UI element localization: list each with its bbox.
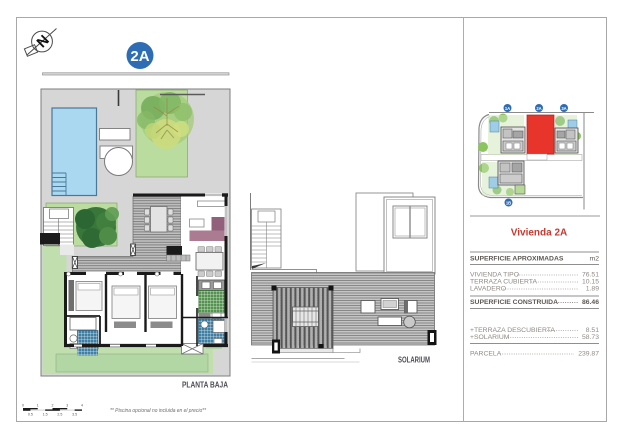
- svg-text:86.46: 86.46: [582, 299, 599, 306]
- svg-text:VIVIENDA TIPO: VIVIENDA TIPO: [470, 272, 519, 279]
- svg-text:** Piscina opcional no incluid: ** Piscina opcional no incluida en el pr…: [110, 408, 207, 414]
- svg-text:2A: 2A: [536, 106, 541, 111]
- svg-text:2: 2: [52, 404, 54, 408]
- svg-text:76.51: 76.51: [582, 272, 599, 279]
- svg-text:2A: 2A: [130, 48, 149, 65]
- svg-text:1B: 1B: [506, 201, 511, 206]
- svg-text:10.15: 10.15: [582, 279, 599, 286]
- svg-text:0.5: 0.5: [28, 413, 33, 417]
- svg-text:SUPERFICIE APROXIMADAS: SUPERFICIE APROXIMADAS: [470, 256, 564, 263]
- svg-text:PARCELA: PARCELA: [470, 351, 502, 358]
- svg-text:1.5: 1.5: [43, 413, 48, 417]
- svg-text:PLANTA BAJA: PLANTA BAJA: [182, 381, 228, 390]
- svg-text:1.89: 1.89: [586, 286, 599, 293]
- svg-text:m2: m2: [590, 256, 600, 263]
- svg-text:58.73: 58.73: [582, 334, 599, 341]
- svg-text:239.87: 239.87: [578, 351, 599, 358]
- svg-text:1: 1: [37, 404, 39, 408]
- svg-text:SUPERFICIE CONSTRUIDA: SUPERFICIE CONSTRUIDA: [470, 299, 558, 306]
- svg-text:2.5: 2.5: [57, 413, 62, 417]
- svg-text:+TERRAZA DESCUBIERTA: +TERRAZA DESCUBIERTA: [470, 327, 555, 334]
- svg-text:0: 0: [22, 404, 24, 408]
- svg-text:8.51: 8.51: [586, 327, 599, 334]
- svg-text:3.5: 3.5: [72, 413, 77, 417]
- svg-text:LAVADERO: LAVADERO: [470, 286, 506, 293]
- svg-text:TERRAZA CUBIERTA: TERRAZA CUBIERTA: [470, 279, 537, 286]
- svg-text:3A: 3A: [561, 106, 566, 111]
- svg-text:4: 4: [81, 404, 83, 408]
- svg-text:+SOLARIUM: +SOLARIUM: [470, 334, 510, 341]
- svg-text:SOLARIUM: SOLARIUM: [398, 356, 430, 365]
- svg-text:1A: 1A: [505, 106, 510, 111]
- svg-text:3: 3: [66, 404, 68, 408]
- svg-text:Vivienda 2A: Vivienda 2A: [511, 228, 568, 239]
